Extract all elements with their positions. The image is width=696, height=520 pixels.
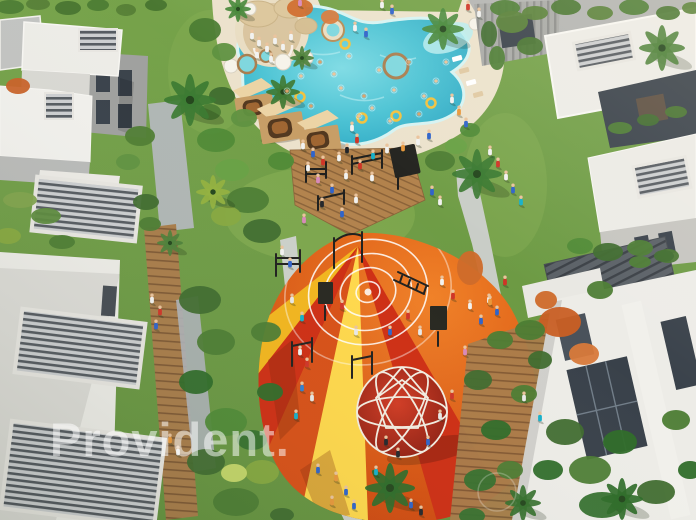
community-render: Provident. bbox=[0, 0, 696, 520]
lighting-overlay bbox=[0, 0, 696, 520]
